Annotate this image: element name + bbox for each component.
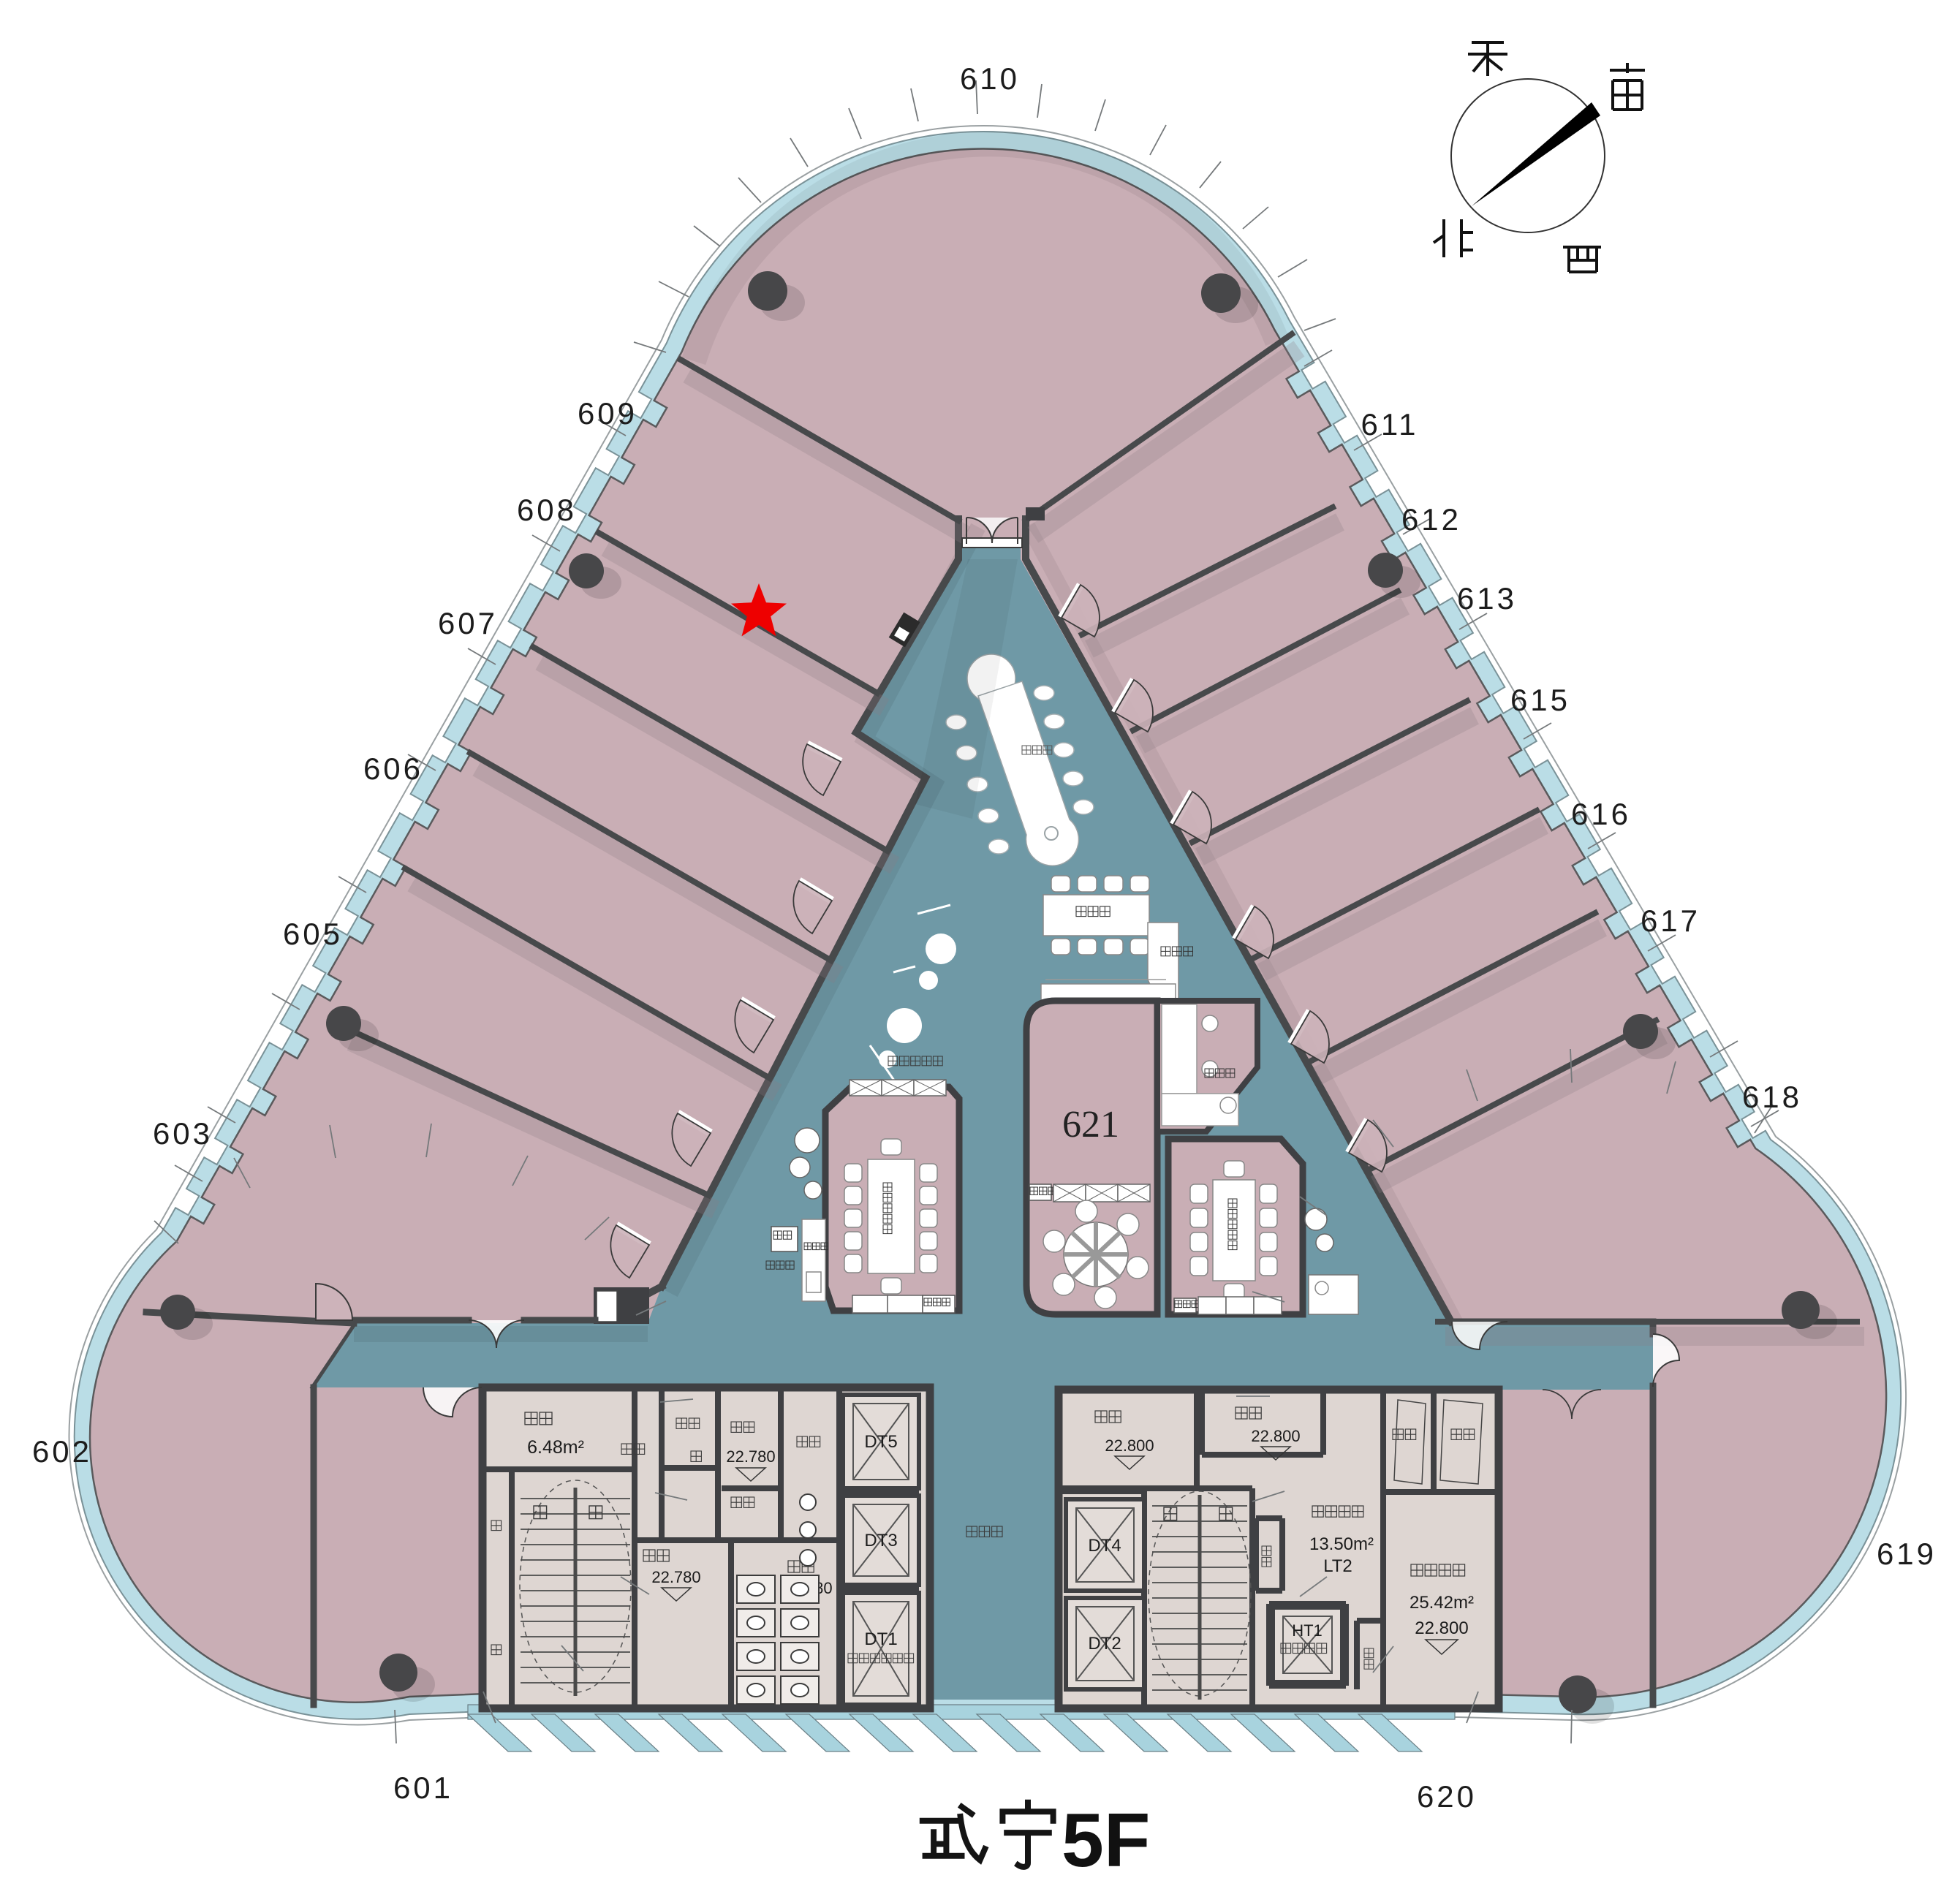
svg-text:22.780: 22.780 bbox=[726, 1447, 775, 1466]
svg-text:5F: 5F bbox=[1062, 1798, 1150, 1883]
svg-text:DT3: DT3 bbox=[864, 1531, 897, 1550]
svg-text:603: 603 bbox=[153, 1116, 213, 1151]
svg-text:DT4: DT4 bbox=[1088, 1536, 1121, 1556]
svg-text:602: 602 bbox=[32, 1434, 92, 1469]
svg-text:619: 619 bbox=[1877, 1537, 1937, 1571]
svg-text:613: 613 bbox=[1457, 581, 1517, 616]
svg-text:22.780: 22.780 bbox=[651, 1568, 700, 1586]
svg-text:DT5: DT5 bbox=[864, 1432, 897, 1452]
svg-text:6.48m²: 6.48m² bbox=[527, 1437, 584, 1458]
svg-text:22.800: 22.800 bbox=[1251, 1427, 1300, 1445]
svg-text:615: 615 bbox=[1510, 683, 1570, 717]
svg-text:610: 610 bbox=[960, 61, 1020, 96]
svg-text:DT2: DT2 bbox=[1088, 1634, 1121, 1654]
svg-text:618: 618 bbox=[1742, 1080, 1802, 1114]
svg-text:607: 607 bbox=[438, 606, 498, 640]
svg-text:612: 612 bbox=[1401, 502, 1461, 537]
svg-text:HT1: HT1 bbox=[1292, 1621, 1323, 1640]
svg-text:609: 609 bbox=[578, 396, 637, 431]
svg-text:22.800: 22.800 bbox=[1105, 1436, 1154, 1455]
svg-text:621: 621 bbox=[1062, 1104, 1119, 1145]
svg-text:DT1: DT1 bbox=[864, 1629, 897, 1649]
svg-text:608: 608 bbox=[517, 493, 577, 527]
svg-text:605: 605 bbox=[283, 917, 343, 951]
svg-text:606: 606 bbox=[363, 751, 423, 786]
svg-text:617: 617 bbox=[1641, 904, 1700, 938]
svg-text:611: 611 bbox=[1361, 407, 1419, 442]
svg-text:620: 620 bbox=[1417, 1779, 1477, 1814]
svg-text:25.42m²: 25.42m² bbox=[1410, 1593, 1474, 1613]
svg-text:22.800: 22.800 bbox=[1415, 1618, 1468, 1638]
svg-text:616: 616 bbox=[1571, 797, 1631, 831]
svg-text:601: 601 bbox=[393, 1771, 453, 1805]
svg-text:LT2: LT2 bbox=[1323, 1556, 1352, 1576]
svg-text:13.50m²: 13.50m² bbox=[1309, 1534, 1374, 1554]
